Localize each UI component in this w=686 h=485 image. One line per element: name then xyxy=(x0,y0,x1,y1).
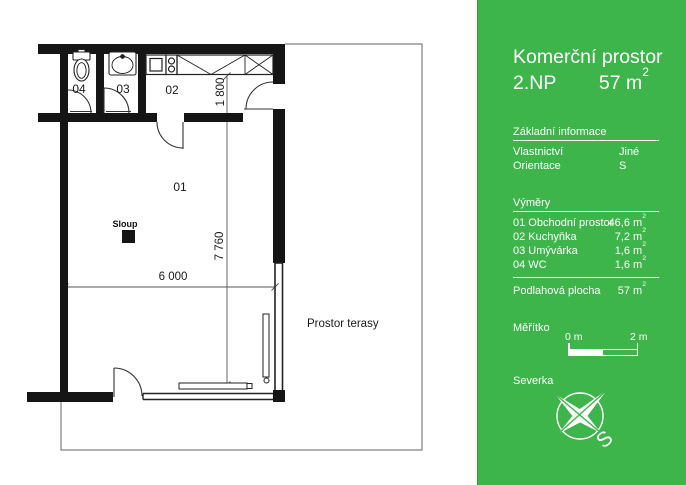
area-value: 1,6 m xyxy=(615,259,643,271)
area-value: 57 m xyxy=(618,285,642,297)
area-value: 46,6 m xyxy=(609,217,643,229)
door-arc-room01 xyxy=(157,122,183,149)
row-label: Vlastnictví xyxy=(513,146,563,158)
row-label: 01 Obchodní prostor xyxy=(513,217,613,229)
area-value: 7,2 m xyxy=(615,231,643,243)
scale-start-label: 0 m xyxy=(565,331,583,343)
room-label-03: 03 xyxy=(111,82,135,96)
area-row-03: 03 Umývárka 1,6 m2 xyxy=(513,245,646,258)
info-panel: Komerční prostor 2.NP 57 m2 Základní inf… xyxy=(477,0,686,485)
row-value: S xyxy=(619,160,626,173)
info-row-ownership: Vlastnictví Jiné xyxy=(513,146,659,159)
window-wall-right xyxy=(275,263,283,390)
door-swings xyxy=(68,82,273,397)
row-value: 46,6 m2 xyxy=(609,217,646,230)
north-heading: Severka xyxy=(513,375,553,387)
dimension-6000: 6 000 xyxy=(143,271,203,283)
divider-line xyxy=(513,211,659,212)
floor-area-row: Podlahová plocha 57 m2 xyxy=(513,285,646,298)
divider-line xyxy=(513,140,659,141)
room-label-01: 01 xyxy=(168,180,192,194)
scale-bar xyxy=(568,343,638,357)
section-basic-heading: Základní informace xyxy=(513,126,607,138)
walls xyxy=(27,44,285,402)
row-label: 04 WC xyxy=(513,259,547,271)
radiator-icons xyxy=(179,314,269,389)
superscript: 2 xyxy=(642,241,646,248)
floor-label: 2.NP xyxy=(513,72,556,95)
superscript: 2 xyxy=(642,281,646,288)
area-value: 1,6 m xyxy=(615,245,643,257)
door-arc-bottom xyxy=(114,368,142,397)
scale-bar-fill xyxy=(568,349,603,356)
row-label: 03 Umývárka xyxy=(513,245,578,257)
superscript: 2 xyxy=(642,213,646,220)
scale-end-label: 2 m xyxy=(630,331,648,343)
superscript: 2 xyxy=(642,65,649,79)
window-wall-bottom xyxy=(143,394,273,400)
superscript: 2 xyxy=(642,255,646,262)
column-label: Sloup xyxy=(105,219,145,229)
row-value: Jiné xyxy=(619,146,639,159)
section-areas-heading: Výměry xyxy=(513,197,550,209)
scale-heading: Měřítko xyxy=(513,322,550,334)
row-label: Orientace xyxy=(513,160,561,172)
area-row-01: 01 Obchodní prostor 46,6 m2 xyxy=(513,217,646,230)
total-area: 57 m2 xyxy=(599,72,649,95)
unit-title: Komerční prostor xyxy=(513,46,663,69)
info-row-orientation: Orientace S xyxy=(513,160,659,173)
divider-line xyxy=(513,277,659,278)
total-area-value: 57 m xyxy=(599,72,642,94)
floor-plan-drawing xyxy=(0,0,480,485)
room-label-02: 02 xyxy=(160,83,184,97)
row-value: 57 m2 xyxy=(618,285,646,298)
sink-icon xyxy=(109,52,136,75)
kitchen-counter xyxy=(146,55,273,75)
door-arc-terrace xyxy=(244,82,273,109)
row-label: 02 Kuchyňka xyxy=(513,231,577,243)
unit-subtitle: 2.NP 57 m2 xyxy=(513,72,649,95)
terrace-label: Prostor terasy xyxy=(307,318,379,330)
dimension-7760: 7 760 xyxy=(214,228,226,264)
area-row-02: 02 Kuchyňka 7,2 m2 xyxy=(513,231,646,244)
room-label-04: 04 xyxy=(67,82,91,96)
row-value: 1,6 m2 xyxy=(615,259,646,272)
area-row-04: 04 WC 1,6 m2 xyxy=(513,259,646,272)
floorplan-page: 04 03 02 01 Sloup 1 800 7 760 6 000 Pros… xyxy=(0,0,686,485)
row-label: Podlahová plocha xyxy=(513,285,600,297)
dimension-1800: 1 800 xyxy=(215,74,227,110)
column-icon xyxy=(122,230,135,243)
superscript: 2 xyxy=(642,227,646,234)
toilet-icon xyxy=(73,50,90,82)
